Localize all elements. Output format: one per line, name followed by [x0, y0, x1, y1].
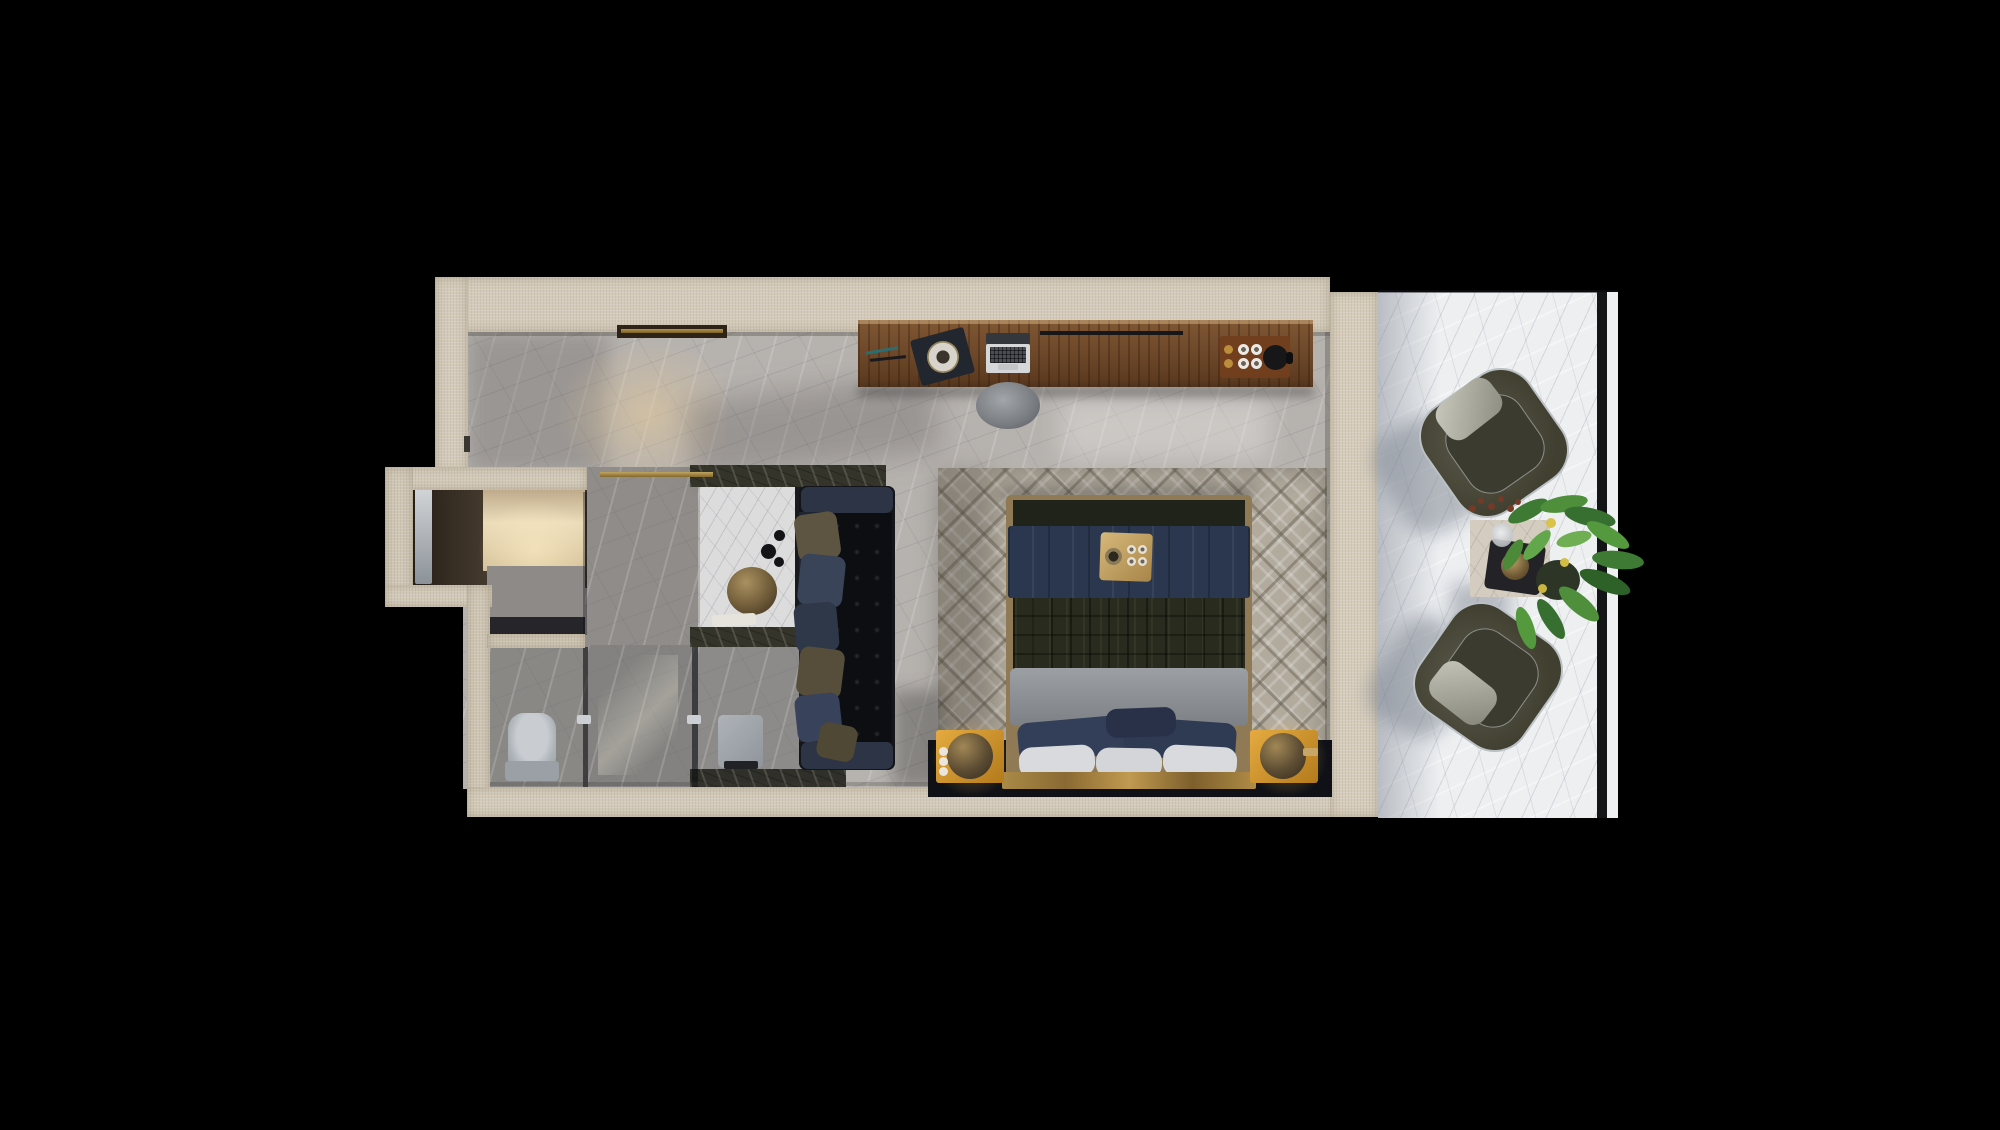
lamp-sphere-left [947, 733, 993, 779]
plant-flower-3 [1538, 584, 1547, 593]
glass-partition-closet [583, 492, 587, 635]
sliding-door-track [600, 472, 713, 477]
tray-glass-1 [1224, 345, 1233, 354]
laptop-screen [986, 333, 1030, 344]
kettle-handle [1286, 352, 1293, 364]
candle-1 [939, 747, 948, 756]
wall-toilet-divider [487, 634, 585, 648]
vanity-top-ledge [690, 465, 886, 487]
sofa-armrest-top [801, 487, 893, 513]
vanity-towel [712, 613, 757, 627]
laptop-trackpad [998, 364, 1018, 370]
faucet-knob-top [774, 530, 785, 541]
glass-clamp-left [577, 715, 591, 724]
wardrobe-rail [621, 329, 723, 333]
vanity-sink-basin [727, 567, 777, 615]
bed-tray-cup-2 [1138, 545, 1147, 554]
desk-stool [976, 382, 1040, 429]
dried-flower-3 [1488, 503, 1495, 510]
notebook-plate [927, 341, 959, 373]
sofa-pillow-navy-2 [793, 601, 840, 654]
laptop-keyboard [990, 347, 1026, 363]
bed-tray-cup-3 [1127, 557, 1136, 566]
dried-flower-6 [1515, 499, 1521, 505]
desk-shadow [858, 387, 1314, 396]
shower-drain-fittings [724, 761, 758, 769]
bed-pillow-lumbar [1106, 707, 1177, 738]
dried-flower-1 [1469, 505, 1476, 512]
desk-front-highlight [858, 320, 1313, 324]
flower-vase [1491, 523, 1513, 547]
dresser-front-edge [487, 617, 585, 634]
sofa-pillow-olive-3 [815, 720, 860, 763]
candle-3 [939, 767, 948, 776]
wall-right [1330, 292, 1378, 817]
faucet-knob-mid [761, 544, 776, 559]
faucet-knob-low [774, 557, 784, 567]
balcony-wall-shadow [1378, 292, 1440, 818]
candle-2 [939, 757, 948, 766]
desk-pen-tray-line [1040, 331, 1183, 335]
door-hinge-mark [464, 436, 470, 452]
dried-flower-2 [1478, 498, 1484, 504]
bed-tray-plate [1105, 548, 1122, 565]
plant-flower-2 [1560, 558, 1569, 567]
espresso-cup-4 [1251, 358, 1262, 369]
espresso-cup-3 [1238, 358, 1249, 369]
bed-tray-cup-1 [1127, 545, 1136, 554]
sofa-pillow-olive-2 [795, 645, 846, 699]
closet-mirror [415, 487, 432, 584]
dried-flower-4 [1498, 496, 1504, 502]
bath-corridor-floor [585, 467, 698, 649]
lamp-sphere-right [1260, 733, 1306, 779]
bedroom-light-patch [1060, 398, 1270, 460]
floor-plan-render [0, 0, 2000, 1130]
tray-glass-2 [1224, 359, 1233, 368]
espresso-cup-2 [1251, 344, 1262, 355]
shower-light-streak [598, 655, 678, 775]
wall-left-lower [467, 585, 490, 817]
wall-jut-left [385, 467, 587, 490]
glass-clamp-right [687, 715, 701, 724]
headboard [1002, 772, 1256, 789]
toilet-tank [505, 761, 559, 781]
kettle [1263, 345, 1288, 370]
dresser-counter [487, 566, 585, 618]
sofa-pillow-navy-1 [796, 553, 846, 608]
plant-flower-1 [1546, 518, 1556, 528]
espresso-cup-1 [1238, 344, 1249, 355]
bed-tray-cup-4 [1138, 557, 1147, 566]
nightstand-handle [1303, 748, 1318, 756]
